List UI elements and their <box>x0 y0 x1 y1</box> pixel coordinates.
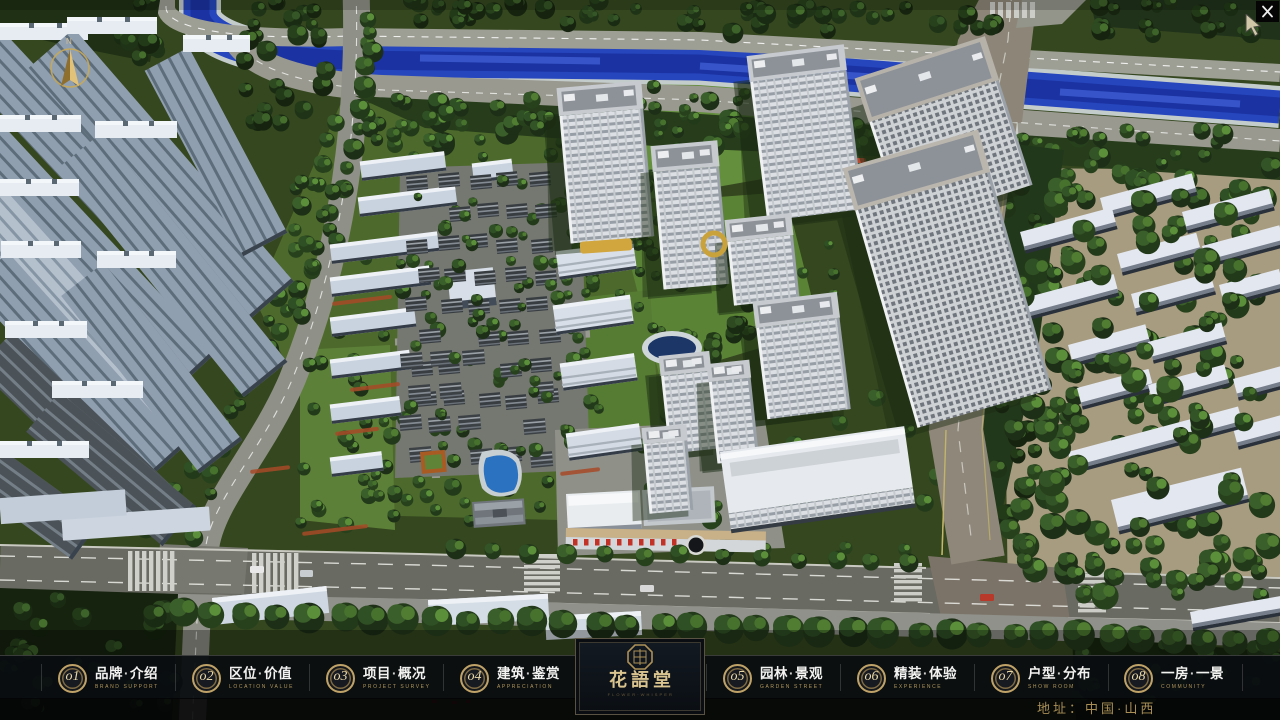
svg-text:N: N <box>66 37 72 46</box>
